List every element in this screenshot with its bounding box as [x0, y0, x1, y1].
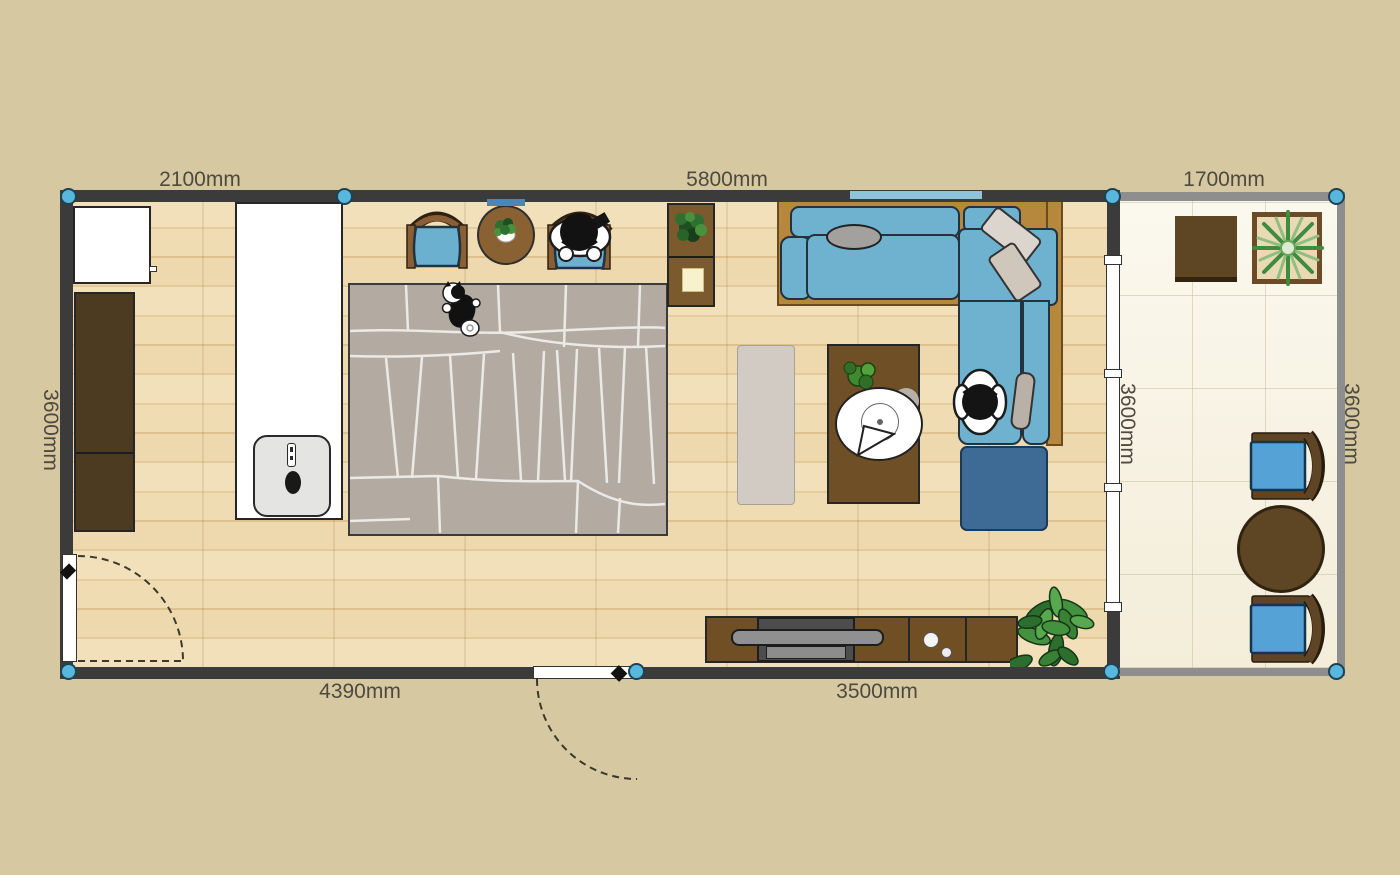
corner-handle-3[interactable]	[1104, 188, 1121, 205]
dimension-bottom-middle: 3500mm	[822, 680, 932, 702]
corner-handle-5[interactable]	[60, 663, 77, 680]
sofa-seat[interactable]	[806, 234, 960, 300]
balcony-wall-bottom[interactable]	[1113, 668, 1345, 676]
faucet-detail	[290, 447, 293, 452]
cabinet-plant[interactable]	[668, 205, 714, 255]
sink[interactable]	[253, 435, 331, 517]
floor-plan-canvas: 2100mm 5800mm 1700mm 3600mm 3600mm 3600m…	[0, 0, 1400, 875]
corner-handle-4[interactable]	[1328, 188, 1345, 205]
corner-handle-8[interactable]	[1328, 663, 1345, 680]
rug-pattern	[350, 285, 665, 533]
cat[interactable]	[438, 281, 484, 339]
balcony-chair[interactable]	[1248, 430, 1326, 502]
wardrobe[interactable]	[74, 292, 135, 532]
decor-bowl-small	[941, 647, 952, 658]
sliding-door-cap-top	[1104, 255, 1122, 265]
wall-right-upper[interactable]	[1107, 200, 1120, 256]
balcony-wall-top[interactable]	[1113, 192, 1345, 201]
dining-chair[interactable]	[404, 198, 470, 272]
wardrobe-divider	[76, 452, 133, 454]
area-rug[interactable]	[348, 283, 668, 536]
coffee-table-plant[interactable]	[838, 356, 884, 402]
sliding-door-divider-2	[1104, 483, 1122, 492]
balcony-chair-2[interactable]	[1248, 593, 1326, 665]
wall-shelf	[487, 199, 525, 206]
dimension-top-middle: 5800mm	[672, 168, 782, 190]
dimension-balcony-right: 3600mm	[1341, 369, 1363, 479]
paper-on-table	[856, 424, 896, 458]
appliance-cabinet[interactable]	[73, 206, 151, 284]
corner-handle-1[interactable]	[60, 188, 77, 205]
corner-handle-7[interactable]	[1103, 663, 1120, 680]
floor-plant[interactable]	[1010, 584, 1106, 674]
console-divider-2	[965, 618, 967, 661]
person-on-sofa[interactable]	[950, 362, 1020, 442]
bench[interactable]	[737, 345, 795, 505]
tv-stand-inner	[766, 646, 846, 659]
dimension-left: 3600mm	[40, 375, 62, 485]
table-plant[interactable]	[487, 213, 523, 249]
terrace-door-swing	[525, 672, 650, 787]
console-divider-1	[908, 618, 910, 661]
tv[interactable]	[731, 629, 884, 646]
entry-door-swing	[60, 548, 200, 673]
sliding-door-cap-bottom	[1104, 602, 1122, 612]
table-lamp	[682, 268, 704, 292]
sofa-tray-pillow[interactable]	[826, 224, 882, 250]
dimension-balcony-top: 1700mm	[1169, 168, 1279, 190]
corner-handle-2[interactable]	[336, 188, 353, 205]
wall-right-lower[interactable]	[1107, 611, 1120, 669]
corner-handle-6[interactable]	[628, 663, 645, 680]
balcony-plant[interactable]	[1246, 206, 1330, 290]
dimension-bottom-left: 4390mm	[305, 680, 415, 702]
faucet-detail2	[290, 456, 293, 460]
window	[850, 191, 982, 199]
balcony-square-table[interactable]	[1175, 216, 1237, 282]
appliance-handle	[149, 266, 157, 272]
side-cabinet-divider	[669, 256, 713, 258]
balcony-round-table[interactable]	[1237, 505, 1325, 593]
drain	[285, 471, 301, 494]
ottoman[interactable]	[960, 446, 1048, 531]
decor-bowl-large	[923, 632, 939, 648]
dining-chair-occupied[interactable]	[541, 196, 619, 274]
dimension-top-left: 2100mm	[145, 168, 255, 190]
dimension-balcony-inner: 3600mm	[1117, 369, 1139, 479]
